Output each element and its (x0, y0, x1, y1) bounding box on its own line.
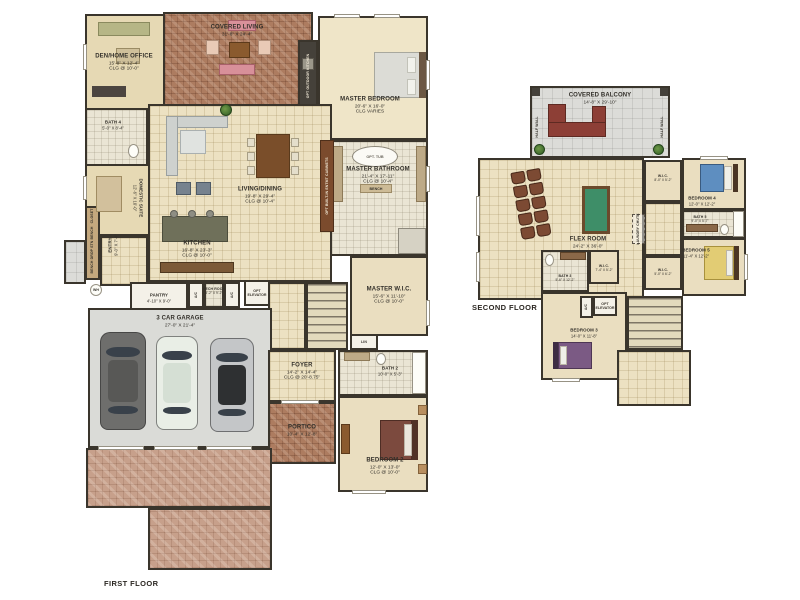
car-silver (210, 338, 254, 432)
label-mech-room: MECH ROOM 4'-2" X 9'-2" (202, 287, 225, 295)
label-drop-station: DROP STN (90, 241, 94, 260)
theater-seat (520, 226, 536, 240)
dining-chair (247, 138, 255, 147)
hallway-first-floor (268, 282, 306, 350)
floor-plan-canvas: OPT ELEVATOR OPT. TUB (0, 0, 800, 600)
label-wic-5: W.I.C. 5'-0" X 6'-2" (654, 268, 671, 276)
car-dark (100, 332, 146, 430)
label-wic-3: W.I.C. 7'-4" X 5'-2" (595, 264, 612, 272)
label-bath-4: BATH 4 5'-0" X 8'-4" (102, 120, 124, 131)
bedroom3-headboard (553, 342, 558, 369)
label-foyer: FOYER 14'-2" X 14'-4" CLG @ 20'-8.75" (284, 362, 320, 381)
label-bath-5: BATH 5 9'-0" X 5'-7" (691, 215, 708, 223)
car-windshield (106, 347, 139, 357)
label-water-heater: WH (93, 288, 99, 292)
foyer-entry-doors (281, 400, 319, 404)
living-sofa-side (166, 116, 178, 176)
master-shower (398, 228, 426, 254)
living-ottoman (180, 130, 206, 154)
label-bench-2: BENCH (90, 261, 94, 274)
kitchen-counter (160, 262, 234, 273)
label-linen: LIN (361, 340, 367, 344)
window-slot (426, 300, 430, 326)
car-rear-window (108, 406, 138, 414)
window-slot (83, 44, 87, 70)
label-laundry-chute: LAUNDRY CHUTE (636, 213, 640, 244)
master-bed-headboard (419, 52, 426, 98)
window-slot (426, 60, 430, 90)
covered-living-chair-right (258, 40, 271, 55)
bath5-vanity (686, 224, 718, 232)
label-den: DEN/HOME OFFICE 15'-8" X 12'-4" CLG @ 10… (95, 53, 153, 72)
den-desk (92, 86, 126, 97)
bath5-toilet (720, 224, 729, 235)
bedroom2-pillows (404, 424, 412, 456)
car-roof (108, 360, 138, 402)
garage-door (98, 446, 144, 450)
label-opt-outdoor-kitchen: OPT OUTDOOR KITCHEN (306, 54, 310, 98)
dining-chair (291, 152, 299, 161)
theater-seat (531, 195, 547, 209)
label-bedroom-4: BEDROOM 4 12'-0" X 12'-2" (688, 196, 716, 207)
label-portico: PORTICO 10'-4" X 12'-8" (287, 424, 317, 437)
label-entmt-cabinets: OPT BUILT-IN ENTMT CABINETS (325, 157, 329, 214)
garage-door (206, 446, 252, 450)
master-bed-pillow (407, 57, 416, 73)
garage-door (154, 446, 198, 450)
theater-seat (533, 209, 549, 223)
label-half-wall-right: HALF WALL (660, 116, 664, 137)
driveway-lower (148, 508, 272, 570)
kitchen-stool (188, 210, 196, 218)
pool-table (582, 186, 610, 234)
balcony-sofa (548, 122, 606, 137)
label-flex-room: FLEX ROOM 24'-2" X 36'-0" (570, 236, 607, 249)
covered-living-fire-table (229, 42, 250, 58)
kitchen-stool (170, 210, 178, 218)
label-closet: CLOSET (90, 209, 94, 224)
living-armchair-2 (196, 182, 211, 195)
car-roof (163, 363, 190, 403)
window-slot (700, 156, 728, 160)
theater-seat (529, 182, 545, 196)
bath2-vanity (344, 352, 370, 361)
bedroom4-pillow (724, 166, 732, 190)
kitchen-island (162, 216, 228, 242)
opt-tub-label: OPT. TUB (366, 155, 383, 159)
master-bath-vanity-right (416, 146, 426, 202)
covered-living-chair-left (206, 40, 219, 55)
domestic-suite-bed (96, 176, 122, 212)
stairs-first-floor (306, 282, 348, 350)
label-bedroom-2: BEDROOM 2 12'-0" X 13'-0" CLG @ 10'-0" (366, 457, 403, 476)
opt-tub: OPT. TUB (352, 146, 398, 167)
label-half-wall-left: HALF WALL (535, 116, 539, 137)
opt-elevator-second-floor: OPT ELEVATOR (593, 296, 617, 316)
window-slot (476, 196, 480, 236)
bedroom2-headboard (412, 420, 418, 460)
label-pantry: PANTRY 4'-10" X 9'-0" (147, 293, 171, 304)
label-kitchen: KITCHEN 16'-8" X 23'-3" CLG @ 10'-0" (182, 240, 212, 259)
car-rear-window (218, 409, 247, 416)
window-slot (334, 14, 360, 18)
theater-seat (515, 198, 531, 212)
bath2-toilet (376, 353, 386, 365)
master-bath-vanity-left (333, 146, 343, 202)
label-entry: ENTRY 9'-0" X 7'-4" (108, 234, 119, 256)
second-floor-title: SECOND FLOOR (472, 303, 537, 312)
label-bedroom-3: BEDROOM 3 14'-0" X 11'-8" (570, 328, 598, 339)
balcony-post (532, 88, 540, 96)
label-master-bathroom: MASTER BATHROOM 21'-4" X 17'-11" CLG @ 1… (346, 166, 409, 185)
first-floor-title: FIRST FLOOR (104, 579, 158, 588)
opt-elevator-first-floor: OPT ELEVATOR (244, 280, 270, 306)
label-wic-4: W.I.C. 8'-0" X 5'-2" (654, 174, 671, 182)
car-roof (218, 365, 247, 405)
bedroom2-nightstand (418, 405, 427, 415)
car-windshield (216, 353, 248, 362)
bedroom4-headboard (733, 164, 738, 192)
dining-chair (247, 166, 255, 175)
bath3-vanity (560, 252, 586, 260)
window-slot (352, 490, 386, 494)
den-sofa (98, 22, 150, 36)
master-bed-pillow (407, 79, 416, 95)
label-covered-balcony: COVERED BALCONY 14'-8" X 29'-10" (569, 92, 632, 105)
balcony-plant (653, 144, 664, 155)
label-ac-1: A/C (194, 292, 198, 298)
theater-seat (518, 212, 534, 226)
window-slot (83, 176, 87, 200)
car-windshield (162, 351, 192, 360)
bedroom5-headboard (734, 246, 739, 280)
kitchen-stool (206, 210, 214, 218)
theater-seat (513, 184, 529, 198)
window-slot (552, 378, 580, 382)
balcony-sofa-arm (548, 104, 566, 124)
bedroom3-pillow (560, 346, 567, 365)
bedroom4-bed (700, 164, 724, 192)
car-white (156, 336, 198, 430)
label-bath-3: BATH 3 5'-6" X 12'-2" (556, 274, 575, 282)
theater-seat (526, 168, 542, 182)
bath2-tub (412, 352, 426, 394)
room-bath-4 (85, 108, 148, 166)
window-slot (374, 14, 400, 18)
driveway-upper (86, 448, 272, 508)
bath4-toilet (128, 144, 139, 158)
stairs-second-floor (627, 296, 683, 350)
living-plant (220, 104, 232, 116)
dining-chair (291, 166, 299, 175)
label-bench: BENCH (370, 187, 383, 191)
bath5-tub (733, 211, 744, 237)
dining-chair (247, 152, 255, 161)
bedroom2-nightstand (418, 464, 427, 474)
bedroom2-armoire (341, 424, 350, 454)
theater-seat (510, 171, 526, 185)
window-slot (476, 252, 480, 282)
covered-living-sofa (219, 64, 255, 75)
window-slot (426, 166, 430, 192)
balcony-post (660, 88, 668, 96)
label-master-bedroom: MASTER BEDROOM 20'-6" X 16'-0" CLG VARIE… (340, 96, 400, 115)
label-ac-3: A/C (584, 304, 588, 310)
theater-seat (536, 223, 552, 237)
living-armchair-1 (176, 182, 191, 195)
label-ac-2: A/C (230, 292, 234, 298)
label-domestic-suite: DOMESTIC SUITE 12'-6" X 10'-0" (133, 179, 144, 218)
bath3-toilet (545, 254, 554, 266)
label-master-wic: MASTER W.I.C. 15'-6" X 11'-10" CLG @ 10'… (367, 286, 412, 305)
dining-chair (291, 138, 299, 147)
car-rear-window (163, 407, 190, 414)
label-garage: 3 CAR GARAGE 27'-0" X 21'-4" (156, 315, 203, 328)
window-slot (744, 254, 748, 280)
label-bedroom-5: BEDROOM 5 11'-4" X 12'-2" (682, 248, 710, 259)
hallway-second-floor (644, 202, 682, 256)
balcony-sofa-arm (592, 106, 606, 123)
stair-landing (617, 350, 691, 406)
dining-table (256, 134, 290, 178)
balcony-plant (534, 144, 545, 155)
label-bath-2: BATH 2 10'-0" X 5'-3" (378, 366, 402, 377)
entry-stoop (64, 240, 86, 284)
label-bench-1: BENCH (90, 227, 94, 240)
label-living-dining: LIVING/DINING 19'-8" X 29'-4" CLG @ 10'-… (238, 186, 282, 205)
bedroom5-pillow (726, 250, 733, 276)
label-covered-living: COVERED LIVING 31'-8" X 24'-4" (211, 24, 264, 37)
